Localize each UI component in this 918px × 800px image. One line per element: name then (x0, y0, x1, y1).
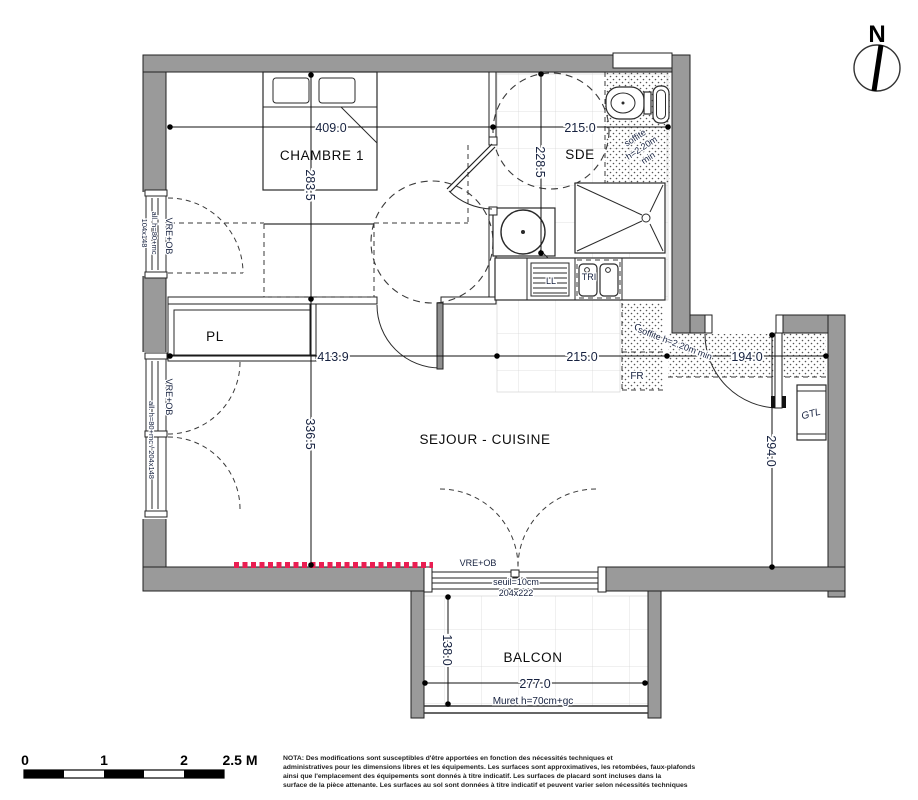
entry-door-opening (705, 314, 783, 334)
wall-right (828, 315, 845, 597)
bed-clearance-zone (264, 224, 374, 297)
window1-cap-top (145, 190, 167, 196)
dim-entry-width: 194.0 (731, 350, 762, 364)
balcony-muret (424, 706, 648, 713)
balcony-jamb-right (598, 567, 606, 592)
dim-chambre-width: 409.0 (315, 121, 346, 135)
scale-seg-1 (24, 770, 64, 778)
wall-balcony-right (648, 591, 661, 718)
dim-balcon-height: 138.0 (440, 634, 454, 665)
sink-bowl-right (600, 264, 618, 296)
balcony-jamb-left (424, 567, 432, 592)
dim-balcon-width: 277.0 (519, 677, 550, 691)
sde-door-leaf-b (450, 147, 495, 192)
wall-top (143, 55, 690, 72)
dim-sde-height: 228.5 (533, 146, 547, 177)
sde-door (447, 137, 497, 215)
partition-chambre-sde-top (489, 72, 496, 145)
seuil-label: seuil=10cm (493, 577, 539, 587)
shower-tray (575, 183, 665, 253)
window2-swing-arc-bottom (168, 437, 240, 509)
north-label: N (868, 21, 885, 48)
window1-cap-bottom (145, 272, 167, 278)
wall-sde-right (672, 55, 690, 333)
sde-label: SDE (565, 147, 595, 162)
fridge-label: FR (630, 371, 643, 382)
window1-vre-label: VRE+OB (164, 218, 174, 255)
window2-allege-label: all. h=80+mc / 204x148 (147, 401, 156, 479)
window1-size-label: 104x148 (140, 219, 149, 248)
towel-radiator-icon (653, 86, 669, 123)
shower-icon (575, 183, 665, 253)
window2-vre-label: VRE+OB (164, 379, 174, 416)
chambre-door (377, 303, 443, 369)
scale-seg-2 (104, 770, 144, 778)
dim-entry-height: 294.0 (764, 435, 778, 466)
nota-line-3: ainsi que l'emplacement des équipements … (283, 773, 661, 780)
entry-door-stop-right (782, 396, 786, 408)
top-wall-notch (613, 53, 672, 68)
partition-chambre-south-left (168, 297, 377, 304)
window1-swing-arc (168, 198, 243, 273)
gtl-cabinet: GTL (797, 385, 826, 440)
closet-pl (168, 304, 316, 361)
closet-outline (168, 304, 316, 361)
muret-label: Muret h=70cm+gc (493, 696, 574, 707)
balcony-door-vre-label: VRE+OB (460, 558, 497, 568)
balcony-door-mullion (511, 570, 519, 577)
toilet-tank (644, 92, 651, 114)
balcon-label: BALCON (503, 650, 562, 665)
north-needle (874, 45, 881, 91)
chambre-door-arc (377, 305, 440, 368)
scale-bar: 0 1 2 2.5 M (21, 752, 257, 778)
nota-line-2: administratives pour les dimensions libr… (283, 764, 695, 771)
floor-plan-svg: LL TRI C FR GTL (0, 0, 918, 800)
floor-plan: LL TRI C FR GTL (0, 0, 918, 800)
washbasin-drain (521, 230, 525, 234)
toilet-icon (606, 87, 651, 119)
pl-label: PL (206, 329, 224, 344)
dim-sejour-width: 413.9 (317, 350, 348, 364)
window1-allege-label: all. h=80+mc (150, 212, 159, 255)
scale-0: 0 (21, 752, 29, 768)
window2-cap-bottom (145, 511, 167, 517)
washbasin-icon (493, 208, 555, 259)
towel-radiator-outer (653, 86, 669, 123)
scale-seg-3 (184, 770, 224, 778)
sde-jamb-bottom (489, 207, 497, 215)
scale-2: 2 (180, 752, 188, 768)
nota-line-4: surface de la pièce attenante. Les surfa… (283, 782, 688, 789)
dim-chambre-height: 283.5 (303, 169, 317, 200)
chambre-door-leaf (437, 303, 443, 369)
kitchen-tiles (497, 300, 620, 392)
sink-label: TRI (582, 272, 597, 282)
scale-1: 1 (100, 752, 108, 768)
sde-door-leaf-a (447, 144, 492, 189)
nota-line-1: NOTA: Des modifications sont susceptible… (283, 755, 613, 762)
toilet-bowl (606, 87, 644, 119)
bed-zone-dashed (264, 224, 374, 297)
kitchen-counter: LL TRI (495, 258, 665, 300)
scale-25: 2.5 M (222, 752, 257, 768)
dim-sde-width: 215.0 (564, 121, 595, 135)
sejour-label: SEJOUR - CUISINE (419, 432, 550, 447)
balcony-door-arc-right (518, 489, 596, 567)
balcony-door-arc-left (440, 489, 518, 567)
chambre-label: CHAMBRE 1 (280, 148, 364, 163)
entry-jamb-right (776, 315, 783, 333)
sde-door-arc (449, 191, 492, 209)
toilet-dot (622, 102, 625, 105)
nota-block: NOTA: Des modifications sont susceptible… (283, 755, 695, 789)
sde-jamb-top (489, 137, 497, 145)
dim-kitchen-width: 215.0 (566, 350, 597, 364)
entry-jamb-left (705, 315, 712, 333)
washing-machine-label: LL (546, 276, 556, 286)
dim-sejour-height: 336.5 (303, 418, 317, 449)
wall-balcony-left (411, 591, 424, 718)
entry-door-leaf (775, 333, 782, 408)
window2-swing-arc-top (168, 362, 240, 434)
north-arrow-icon: N (854, 21, 900, 91)
balcony-door-size-label: 204x222 (499, 588, 534, 598)
turning-circle-chambre (371, 181, 493, 303)
window2-cap-top (145, 353, 167, 359)
